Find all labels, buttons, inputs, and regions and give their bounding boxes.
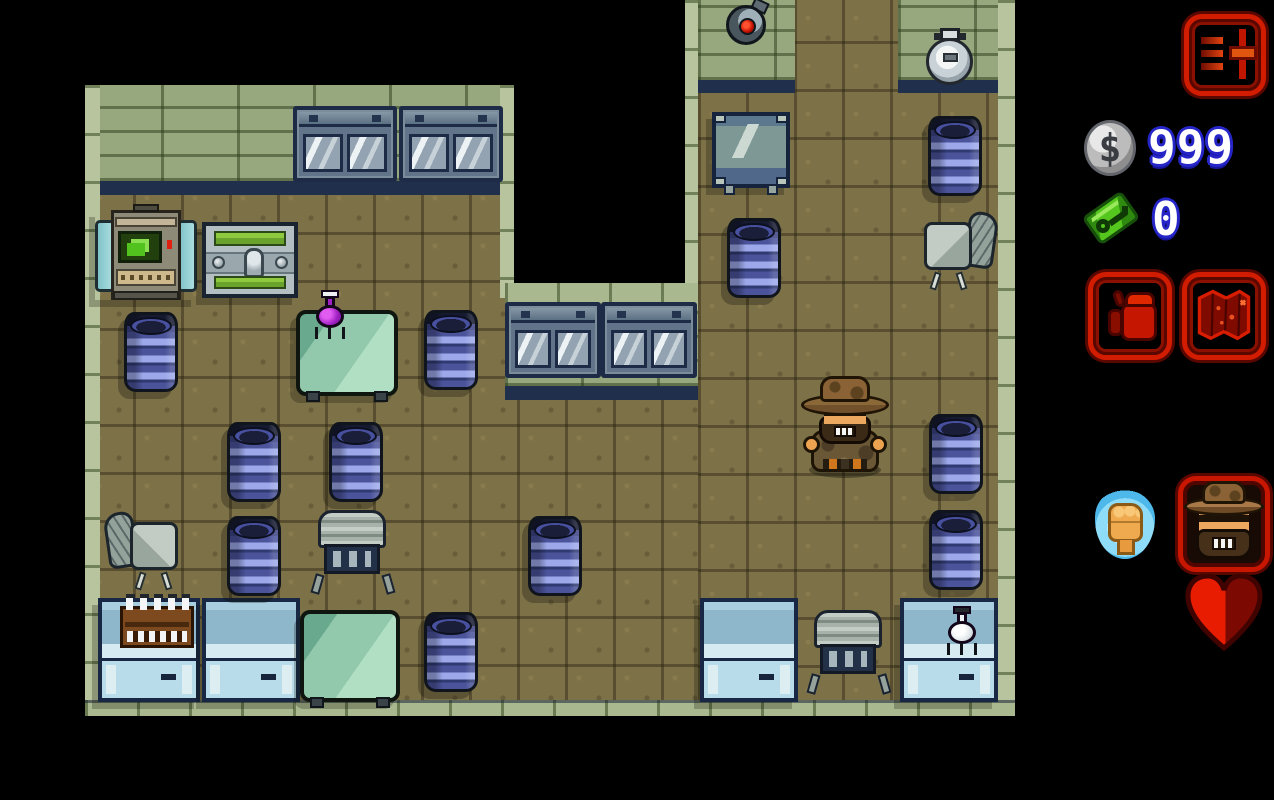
counter-front <box>206 658 296 698</box>
barrel <box>928 116 982 196</box>
glass-wall-cabinet <box>505 302 601 378</box>
chest-rivet <box>212 256 225 269</box>
flask-bulb <box>948 621 976 644</box>
terminal-vent <box>133 204 159 212</box>
chest-band <box>214 276 286 289</box>
cart-grill <box>820 644 876 674</box>
barrel <box>929 414 983 494</box>
counter-handle <box>261 674 276 680</box>
chest-band <box>214 231 286 246</box>
terminal-trim <box>115 217 177 227</box>
dollar-sign: $ <box>1099 129 1122 167</box>
cabinet-header <box>405 112 497 127</box>
key-tooth <box>1122 206 1128 214</box>
terminal-base <box>113 291 179 300</box>
table-foot <box>374 391 388 402</box>
cabinet-glass <box>453 134 493 172</box>
cabinet-glass <box>409 134 449 172</box>
flask-bulb <box>316 305 344 328</box>
backpack-body <box>1121 303 1157 341</box>
wall-fountain <box>924 28 976 90</box>
terminal-led <box>167 240 172 249</box>
counter-front <box>904 658 994 698</box>
slider-handle <box>1229 46 1257 60</box>
white-flask <box>944 606 980 656</box>
screen-glow <box>127 243 145 256</box>
utility-cart <box>310 510 396 594</box>
counter-top <box>206 602 296 658</box>
cabinet-glass <box>303 134 343 172</box>
cabinet-glass <box>515 330 551 368</box>
camera-lens <box>739 18 756 35</box>
lab-counter <box>202 598 300 702</box>
player-hand <box>803 436 820 453</box>
cart-leg <box>806 673 820 695</box>
test-tubes <box>126 597 190 610</box>
cart-hood <box>814 610 882 648</box>
cabinet-header <box>511 308 595 323</box>
chair-leg <box>134 571 146 590</box>
flask-stand <box>947 643 977 655</box>
backpack-flap <box>1125 292 1155 307</box>
map-icon <box>1195 287 1253 345</box>
wall-edge-right <box>998 0 1015 716</box>
inventory-button[interactable] <box>1088 272 1172 360</box>
wall-shadow <box>505 386 698 400</box>
chair-leg <box>955 271 967 290</box>
key-counter: 0 <box>1152 196 1181 242</box>
glass-wall-cabinet <box>293 106 397 182</box>
lab-counter <box>700 598 798 702</box>
flask-stand <box>315 327 345 339</box>
barrel <box>227 422 281 502</box>
chair-seat <box>130 522 178 570</box>
counter-front <box>102 658 196 698</box>
green-table <box>300 610 400 702</box>
barrel <box>929 510 983 590</box>
key-bow <box>1096 219 1110 233</box>
key-icon <box>1082 188 1140 248</box>
terminal-keyboard <box>116 269 176 286</box>
chair-leg <box>160 571 172 590</box>
player-hat-crown <box>820 376 870 402</box>
punch-ability-button[interactable] <box>1094 488 1158 562</box>
office-chair <box>922 210 996 290</box>
metal-desk <box>712 112 790 188</box>
slider-line <box>1201 37 1223 44</box>
void-notch <box>514 0 685 285</box>
counter-top <box>704 602 794 658</box>
barrel <box>727 218 781 298</box>
wall-shadow <box>85 181 505 195</box>
fist-wrist <box>1117 540 1135 555</box>
fountain-slot <box>943 53 958 62</box>
counter-handle <box>161 674 176 680</box>
settings-button[interactable] <box>1184 14 1266 96</box>
character-portrait-hopper <box>1178 476 1270 572</box>
cart-leg <box>877 673 891 695</box>
map-button[interactable] <box>1182 272 1266 360</box>
cabinet-header <box>607 308 691 323</box>
barrel <box>227 516 281 596</box>
cart-leg <box>381 573 395 595</box>
wall-bottom <box>85 700 1015 716</box>
money-counter: 999 <box>1148 124 1234 170</box>
chest-clasp <box>244 248 264 278</box>
slider-line <box>1201 50 1223 57</box>
punch-fist-icon <box>1108 503 1143 542</box>
player-hand <box>870 436 887 453</box>
desk-corner <box>776 114 788 123</box>
computer-terminal <box>95 210 197 300</box>
player-grin <box>834 426 856 437</box>
counter-handle <box>959 674 974 680</box>
counter-front <box>704 658 794 698</box>
cabinet-glass <box>611 330 647 368</box>
barrel <box>124 312 178 392</box>
table-foot <box>310 697 324 708</box>
purple-flask <box>312 290 348 340</box>
desk-corner <box>714 114 726 123</box>
security-camera-icon <box>724 0 772 52</box>
barrel <box>424 310 478 390</box>
desk-foot <box>767 184 778 195</box>
glass-wall-cabinet <box>399 106 503 182</box>
wall-shadow <box>698 80 795 93</box>
terminal-screen <box>118 231 162 263</box>
cabinet-glass <box>651 330 687 368</box>
slider-line <box>1201 63 1223 70</box>
chair-leg <box>929 271 941 290</box>
cart-grill <box>324 544 380 574</box>
chair-seat <box>924 222 972 270</box>
player-character-hopper <box>799 374 891 478</box>
portrait-hat-crown <box>1202 481 1246 504</box>
cart-leg <box>310 573 324 595</box>
portrait-eyes <box>1199 515 1249 522</box>
office-chair <box>106 510 180 590</box>
portrait-grin <box>1212 537 1236 550</box>
supply-chest <box>202 222 298 298</box>
wall-edge <box>685 0 698 290</box>
player-belt <box>823 459 867 469</box>
test-tube-rack <box>120 606 194 648</box>
glass-wall-cabinet <box>601 302 697 378</box>
barrel <box>528 516 582 596</box>
game-screen[interactable]: $ 999 0 <box>0 0 1274 800</box>
cart-hood <box>318 510 386 548</box>
barrel <box>329 422 383 502</box>
cabinet-glass <box>347 134 387 172</box>
cabinet-glass <box>555 330 591 368</box>
barrel <box>424 612 478 692</box>
desk-foot <box>724 184 735 195</box>
cabinet-header <box>299 112 391 127</box>
table-foot <box>376 697 390 708</box>
health-heart-icon <box>1182 574 1266 654</box>
dollar-coin-icon: $ <box>1084 120 1136 176</box>
chest-rivet <box>275 256 288 269</box>
counter-handle <box>759 674 774 680</box>
utility-cart <box>806 610 892 694</box>
table-foot <box>306 391 320 402</box>
